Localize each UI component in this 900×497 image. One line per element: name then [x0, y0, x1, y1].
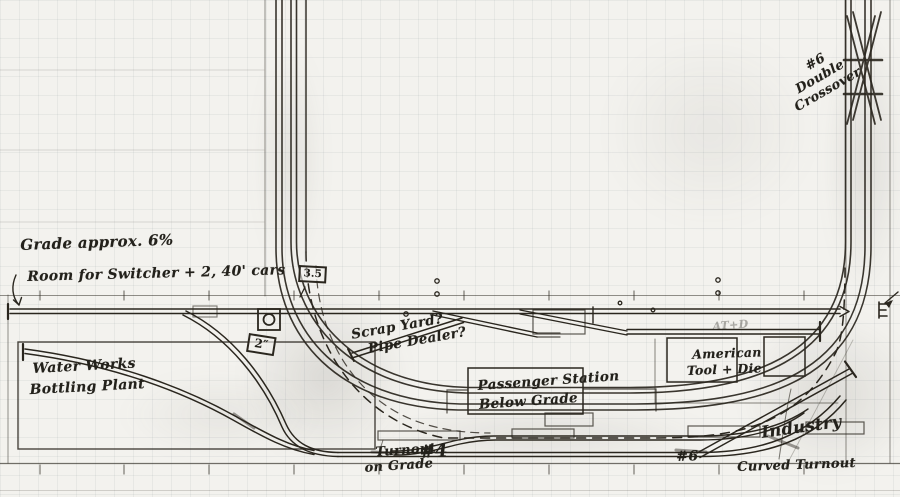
american-tool-scribble: AT+D [712, 317, 749, 332]
track-end-bracket [879, 302, 887, 318]
water-works-label: Water Works Bottling Plant [32, 353, 145, 401]
turnout-number-4: #4 [419, 443, 448, 460]
staging-arrow-icon [885, 292, 898, 308]
pencil-accents [234, 414, 798, 453]
turnout-on-grade-label: Turnout on Grade #4 [363, 441, 437, 476]
elevation-marker-water-works-spur: 2″ [246, 333, 276, 356]
room-note-arrow-icon [13, 275, 22, 305]
track-plan-sketch: Grade approx. 6% Room for Switcher + 2, … [0, 0, 900, 497]
american-tool-label: American Tool + Die [686, 344, 762, 379]
elevation-marker-hidden-main: 3.5 [298, 265, 327, 284]
grid-accent-lines [0, 70, 264, 222]
turnout-number-6-label: #6 [676, 448, 699, 465]
